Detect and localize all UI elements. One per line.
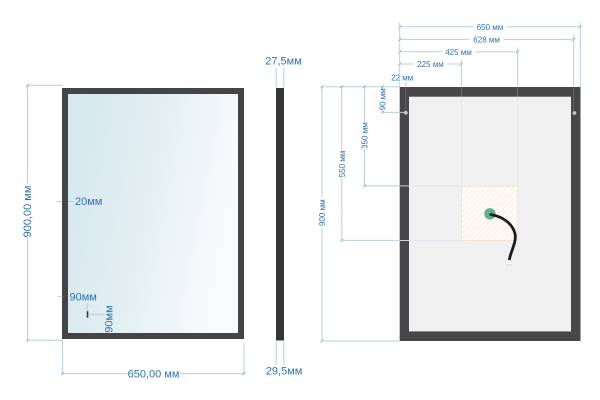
svg-text:29,5мм: 29,5мм [266, 366, 303, 378]
svg-text:225 мм: 225 мм [417, 60, 444, 69]
svg-text:350 мм: 350 мм [361, 122, 370, 149]
svg-text:900 мм: 900 мм [318, 199, 327, 226]
svg-text:650 мм: 650 мм [477, 23, 504, 32]
svg-text:90мм: 90мм [70, 292, 97, 304]
svg-text:90мм: 90мм [103, 305, 115, 332]
svg-text:90 мм: 90 мм [379, 88, 388, 110]
svg-text:900,00 мм: 900,00 мм [22, 186, 34, 238]
svg-text:628 мм: 628 мм [473, 35, 500, 44]
svg-text:20мм: 20мм [75, 196, 102, 208]
svg-text:22 мм: 22 мм [391, 74, 413, 83]
svg-text:650,00 мм: 650,00 мм [128, 368, 180, 380]
svg-text:550 мм: 550 мм [338, 151, 347, 178]
svg-text:27,5мм: 27,5мм [265, 56, 302, 68]
svg-text:425 мм: 425 мм [445, 48, 472, 57]
